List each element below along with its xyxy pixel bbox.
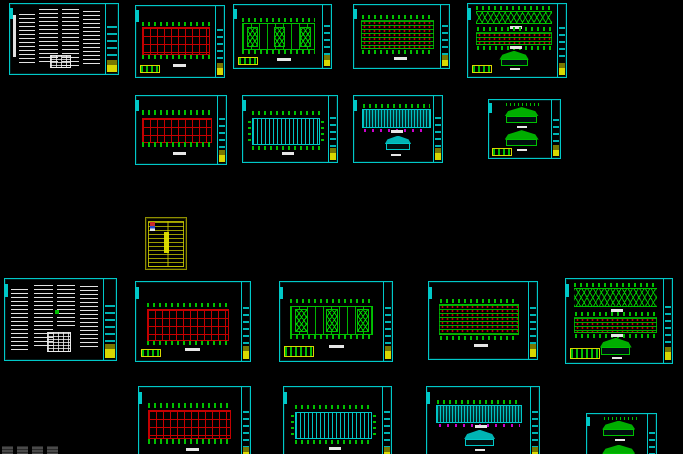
title-block-strip <box>328 96 337 162</box>
drawing-caption-text <box>394 57 407 60</box>
notes-text-column <box>19 14 35 64</box>
gable-section-graphic <box>602 421 635 436</box>
building-elevation-graphic <box>362 109 431 128</box>
green-marker-dot <box>55 310 59 314</box>
notes-text-column <box>80 286 98 349</box>
sheet-elevation-section-1[interactable] <box>353 95 443 163</box>
sheet-sheeting-plan-1[interactable] <box>242 95 338 163</box>
roof-hatch-graphic <box>252 118 320 145</box>
title-block-strip <box>215 6 224 77</box>
gable-section-graphic <box>499 51 528 66</box>
drawing-caption-text <box>173 152 186 155</box>
roof-hatch-graphic <box>295 412 372 439</box>
building-elevation-graphic <box>436 405 522 423</box>
dimension-ticks <box>142 55 210 59</box>
drawing-caption-text <box>474 344 488 347</box>
dimension-ticks <box>295 440 372 444</box>
title-block-strip <box>217 96 226 164</box>
sheet-elevations-2[interactable] <box>565 278 673 364</box>
sheet-sheeting-plan-2[interactable] <box>283 386 392 454</box>
dimension-ticks <box>290 335 373 339</box>
dimension-ticks <box>142 110 211 115</box>
sheet-grid-plan-4[interactable] <box>138 386 251 454</box>
drawing-caption-text <box>475 425 487 428</box>
drawing-caption-text <box>612 357 622 359</box>
building-elevation-graphic <box>574 317 657 333</box>
column-grid-graphic <box>147 309 229 341</box>
legend-marks <box>140 65 160 73</box>
legend-marks <box>238 57 258 65</box>
legend-marks <box>141 349 161 357</box>
purlin-field-graphic <box>361 20 434 48</box>
title-block-strip <box>551 100 560 158</box>
notes-sidebar-graphic <box>13 15 16 57</box>
x-brace-bay-graphic <box>274 27 285 48</box>
drawing-caption-text <box>282 152 294 155</box>
notes-table-graphic <box>47 332 71 352</box>
drawing-caption-text <box>329 345 344 348</box>
dimension-ticks <box>142 22 210 26</box>
title-block-strip <box>241 282 250 361</box>
sheet-grid-plan-2[interactable] <box>135 95 227 165</box>
approval-stamp <box>150 222 155 231</box>
notes-text-column <box>57 285 75 330</box>
drawing-caption-text <box>510 46 522 49</box>
x-brace-bay-graphic <box>326 309 339 332</box>
drawing-caption-text <box>510 68 520 70</box>
title-block-strip <box>241 387 250 454</box>
dimension-ticks <box>147 341 229 345</box>
sheet-elevations-1[interactable] <box>467 3 567 78</box>
column-grid-graphic <box>148 410 231 440</box>
title-block-strip <box>105 4 118 74</box>
gable-section-graphic <box>505 107 539 123</box>
title-block-strip <box>440 5 449 68</box>
drawing-caption-text <box>517 149 527 151</box>
gable-section-graphic <box>600 338 632 355</box>
model-space-canvas[interactable] <box>0 0 683 454</box>
title-block-strip <box>322 5 331 68</box>
drawing-caption-text <box>185 348 200 351</box>
sheet-bracing-plan-2[interactable] <box>279 281 393 362</box>
title-block-strip <box>433 96 442 162</box>
title-block-strip <box>383 282 392 361</box>
clipped-watermark-text <box>2 446 59 454</box>
x-brace-bay-graphic <box>300 27 311 48</box>
legend-marks <box>570 348 600 359</box>
sheet-drawing-list[interactable] <box>145 217 187 270</box>
highlight-cell <box>164 232 169 252</box>
notes-text-column <box>11 289 29 351</box>
sheet-purlin-plan-1[interactable] <box>353 4 450 69</box>
sheet-grid-plan-3[interactable] <box>135 281 251 362</box>
drawing-caption-text <box>277 58 291 61</box>
notes-text-column <box>83 11 99 64</box>
bracing-plan-graphic <box>290 306 373 335</box>
gable-section-graphic <box>385 136 411 151</box>
sheet-general-notes-2[interactable] <box>4 278 117 361</box>
title-block-strip <box>530 387 539 454</box>
sheet-frame-sections-2[interactable] <box>586 413 657 454</box>
sheet-elevation-section-2[interactable] <box>426 386 540 454</box>
sheet-frame-sections-1[interactable] <box>488 99 561 159</box>
column-grid-graphic <box>142 118 211 143</box>
bracing-plan-graphic <box>242 23 316 50</box>
dimension-ticks <box>242 50 316 54</box>
dimension-ticks <box>148 439 231 444</box>
title-block-strip <box>528 282 537 359</box>
sheet-purlin-plan-2[interactable] <box>428 281 538 360</box>
title-block-strip <box>663 279 672 363</box>
sheet-grid-plan-1[interactable] <box>135 5 225 78</box>
dimension-ticks <box>252 111 320 115</box>
drawing-caption-text <box>391 130 403 133</box>
drawing-caption-text <box>475 449 485 451</box>
dimension-ticks <box>142 142 211 147</box>
dimension-ticks <box>148 403 231 408</box>
sheet-bracing-plan-1[interactable] <box>233 4 332 69</box>
x-brace-bay-graphic <box>357 309 370 332</box>
drawing-caption-text <box>186 448 199 451</box>
title-block-strip <box>103 279 116 360</box>
building-elevation-graphic <box>476 32 552 45</box>
drawing-caption-text <box>391 154 401 156</box>
gable-section-graphic <box>602 445 635 454</box>
title-block-strip <box>382 387 391 454</box>
title-block-strip <box>647 414 656 454</box>
truss-elevation-graphic <box>574 288 657 307</box>
drawing-caption-text <box>517 126 527 128</box>
x-brace-bay-graphic <box>295 309 308 332</box>
title-block-strip <box>557 4 566 77</box>
truss-elevation-graphic <box>476 11 552 24</box>
legend-marks <box>472 65 492 73</box>
dimension-ticks <box>242 18 316 22</box>
gable-section-graphic <box>464 430 495 447</box>
dimension-ticks <box>252 146 320 150</box>
drawing-caption-text <box>615 439 625 441</box>
x-brace-bay-graphic <box>247 27 258 48</box>
drawing-caption-text <box>329 447 341 450</box>
sheet-general-notes-1[interactable] <box>9 3 119 75</box>
dimension-ticks <box>147 303 229 307</box>
dimension-ticks <box>295 405 372 409</box>
legend-marks <box>284 346 314 357</box>
drawing-caption-text <box>173 64 186 67</box>
legend-marks <box>492 148 512 156</box>
purlin-field-graphic <box>439 304 519 335</box>
gable-section-graphic <box>505 130 539 146</box>
column-grid-graphic <box>142 27 210 55</box>
dimension-ticks <box>290 299 373 303</box>
notes-table-graphic <box>50 55 71 68</box>
